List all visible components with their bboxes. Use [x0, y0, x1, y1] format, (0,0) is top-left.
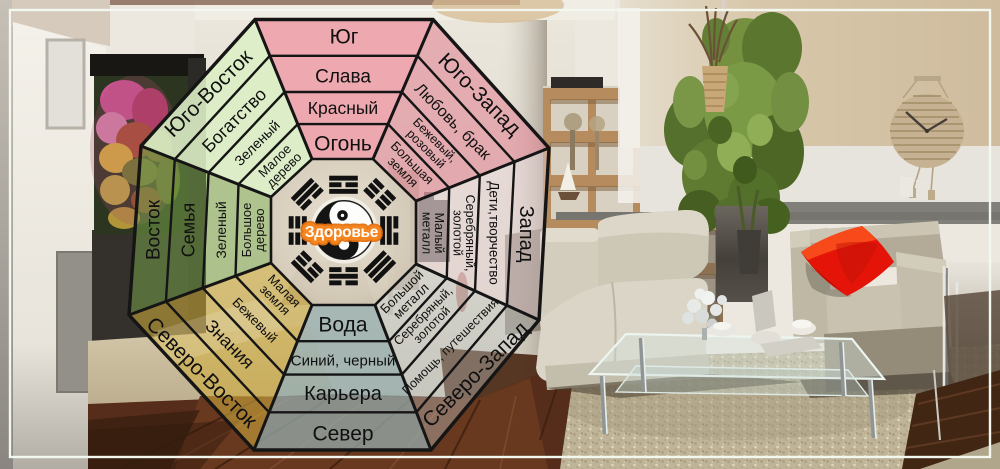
svg-text:золотой: золотой: [451, 210, 465, 256]
svg-text:Дети,творчество: Дети,творчество: [486, 181, 501, 285]
svg-text:Восток: Восток: [144, 199, 165, 260]
svg-text:Семья: Семья: [178, 203, 198, 258]
svg-text:Юг: Юг: [330, 25, 359, 48]
svg-text:Запад: Запад: [515, 206, 537, 263]
svg-text:металл: металл: [420, 212, 434, 254]
svg-text:дерево: дерево: [252, 208, 267, 251]
svg-text:Карьера: Карьера: [304, 383, 383, 405]
svg-text:Слава: Слава: [315, 67, 371, 88]
svg-text:Зеленый: Зеленый: [213, 201, 229, 258]
svg-text:Север: Север: [312, 422, 373, 445]
svg-text:Синий, черный: Синий, черный: [291, 352, 396, 369]
svg-text:Здоровье: Здоровье: [305, 224, 379, 241]
svg-text:Красный: Красный: [308, 98, 378, 118]
svg-text:Вода: Вода: [318, 313, 367, 336]
svg-text:Огонь: Огонь: [314, 132, 372, 155]
